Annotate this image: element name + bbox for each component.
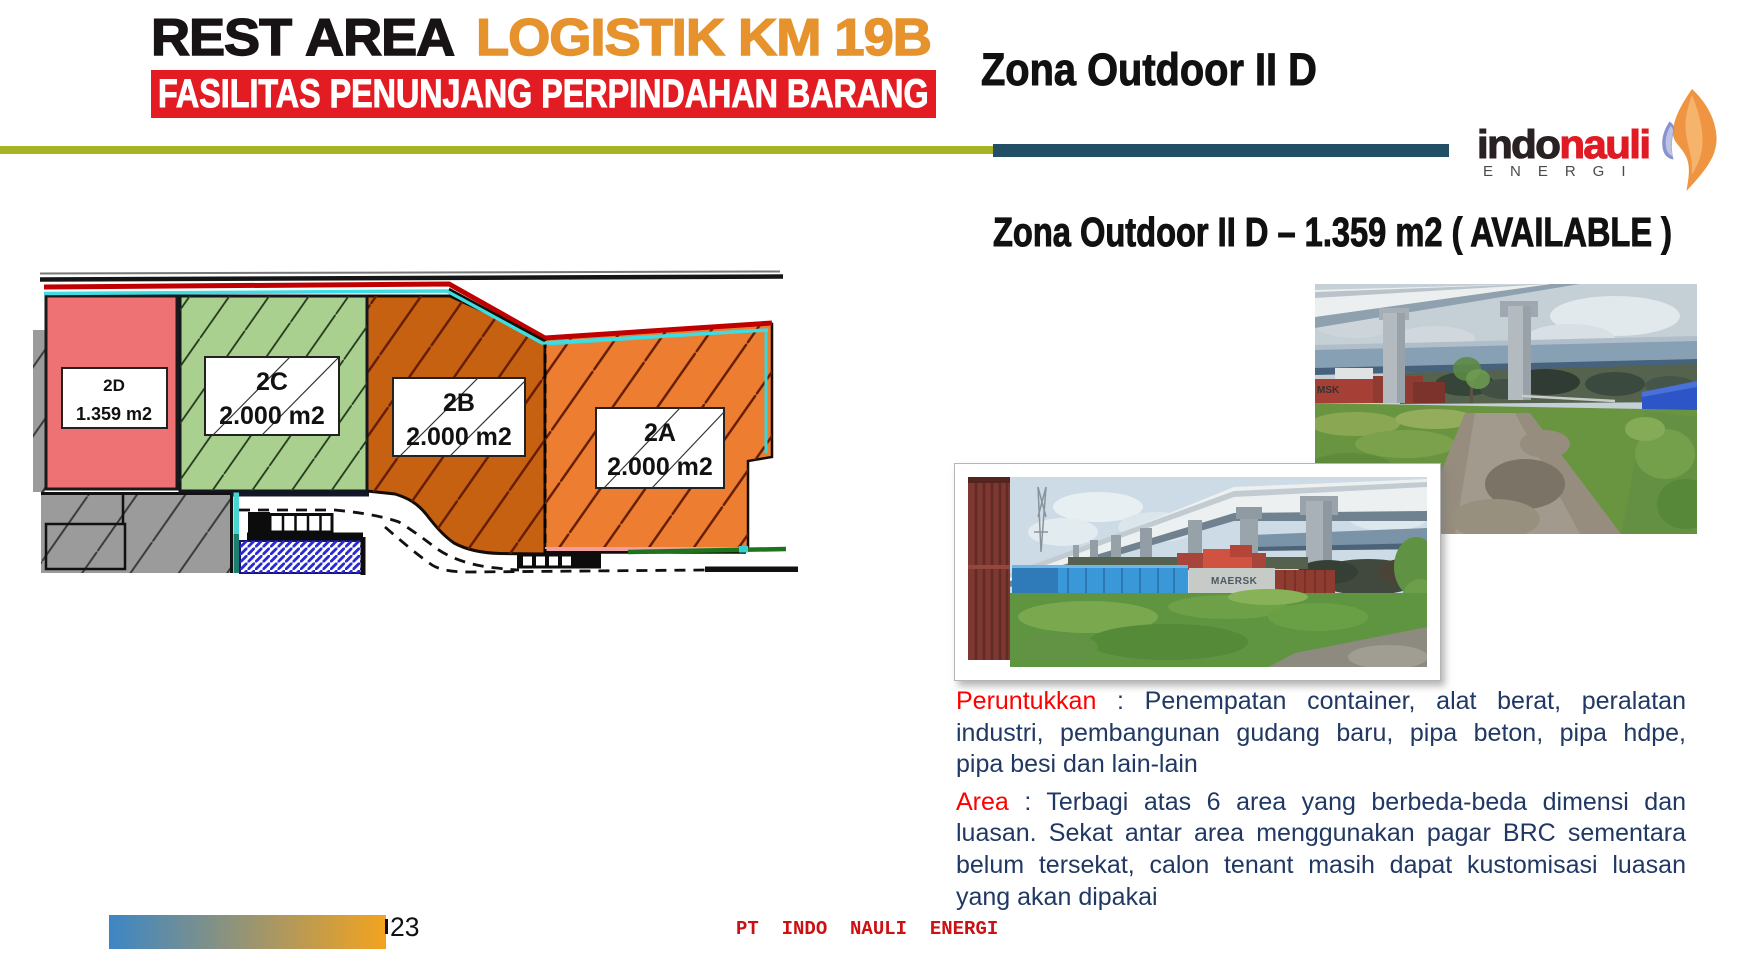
svg-text:MAERSK: MAERSK: [1211, 576, 1258, 587]
svg-text:2D: 2D: [103, 376, 125, 395]
svg-text:1.359 m2: 1.359 m2: [76, 404, 152, 424]
svg-text:2C: 2C: [256, 368, 288, 396]
svg-text:2.000 m2: 2.000 m2: [219, 402, 325, 430]
svg-text:2B: 2B: [443, 389, 475, 417]
svg-text:2.000 m2: 2.000 m2: [607, 453, 713, 481]
svg-text:2A: 2A: [644, 419, 676, 447]
svg-text:2.000 m2: 2.000 m2: [406, 423, 512, 451]
svg-text:MSK: MSK: [1317, 385, 1340, 396]
